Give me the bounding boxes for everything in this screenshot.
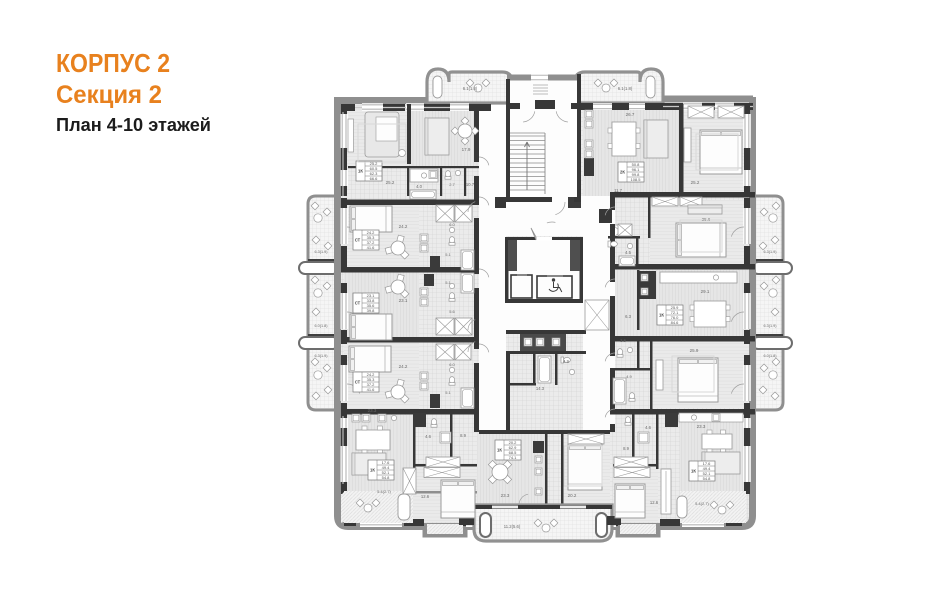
- svg-text:1К: 1К: [358, 169, 363, 174]
- svg-text:25.2: 25.2: [691, 180, 700, 185]
- svg-text:26.7: 26.7: [626, 112, 635, 117]
- svg-text:1К: 1К: [691, 469, 696, 474]
- svg-text:12.6: 12.6: [421, 494, 430, 499]
- svg-text:4.9: 4.9: [563, 359, 569, 364]
- svg-text:4.5: 4.5: [625, 250, 631, 255]
- svg-text:84.6: 84.6: [671, 320, 680, 325]
- svg-text:23.3: 23.3: [697, 424, 706, 429]
- svg-text:2К: 2К: [620, 170, 625, 175]
- svg-text:1К: 1К: [370, 468, 375, 473]
- svg-text:5.1: 5.1: [445, 390, 451, 395]
- svg-text:4.6: 4.6: [425, 434, 431, 439]
- svg-text:24.2: 24.2: [399, 364, 408, 369]
- svg-text:5.4(2.7): 5.4(2.7): [695, 501, 709, 506]
- svg-text:4.6: 4.6: [645, 425, 651, 430]
- svg-text:20.2: 20.2: [568, 493, 577, 498]
- svg-text:5.4(2.7): 5.4(2.7): [377, 489, 391, 494]
- svg-text:1К: 1К: [659, 313, 664, 318]
- svg-text:6.3(1.9): 6.3(1.9): [763, 250, 777, 254]
- svg-text:СТ: СТ: [355, 380, 361, 385]
- svg-text:5.1: 5.1: [445, 280, 451, 285]
- svg-text:54.8: 54.8: [703, 476, 712, 481]
- svg-text:6.0: 6.0: [449, 222, 455, 227]
- svg-text:41.6: 41.6: [367, 245, 376, 250]
- svg-text:Секция 2: Секция 2: [56, 81, 162, 109]
- svg-text:6.3(1.9): 6.3(1.9): [763, 324, 777, 328]
- svg-text:66.6: 66.6: [370, 176, 379, 181]
- svg-text:6.1(1.8): 6.1(1.8): [618, 86, 633, 91]
- svg-text:23.3: 23.3: [368, 408, 377, 413]
- svg-text:10.7: 10.7: [466, 182, 475, 187]
- svg-text:6.0(1.8): 6.0(1.8): [763, 354, 777, 358]
- svg-text:8.9: 8.9: [623, 446, 629, 451]
- svg-text:5.6: 5.6: [449, 309, 455, 314]
- svg-text:41.6: 41.6: [367, 387, 376, 392]
- svg-text:12.6: 12.6: [650, 500, 659, 505]
- svg-text:25.2: 25.2: [386, 180, 395, 185]
- svg-text:8.9: 8.9: [460, 433, 466, 438]
- svg-text:24.2: 24.2: [399, 224, 408, 229]
- svg-text:25.9: 25.9: [690, 348, 699, 353]
- svg-text:КОРПУС 2: КОРПУС 2: [56, 48, 170, 78]
- svg-text:108.5: 108.5: [630, 177, 641, 182]
- svg-text:6.3(1.9): 6.3(1.9): [314, 354, 328, 358]
- svg-text:4.9: 4.9: [626, 374, 632, 379]
- svg-text:6.1(1.8): 6.1(1.8): [463, 86, 478, 91]
- svg-text:39.8: 39.8: [367, 308, 376, 313]
- svg-text:23.3: 23.3: [501, 493, 510, 498]
- svg-text:2.7: 2.7: [449, 182, 455, 187]
- svg-text:6.0(1.8): 6.0(1.8): [314, 324, 328, 328]
- svg-text:11.2(5.6): 11.2(5.6): [504, 524, 521, 529]
- svg-text:1К: 1К: [497, 448, 502, 453]
- svg-text:6.3(1.9): 6.3(1.9): [314, 250, 328, 254]
- svg-text:6.3: 6.3: [625, 314, 631, 319]
- svg-text:СТ: СТ: [355, 238, 361, 243]
- svg-text:17.9: 17.9: [462, 147, 471, 152]
- svg-text:23.1: 23.1: [399, 298, 408, 303]
- svg-text:6.0: 6.0: [449, 362, 455, 367]
- svg-text:74.1: 74.1: [509, 455, 518, 460]
- svg-text:11.7: 11.7: [614, 188, 623, 193]
- svg-text:14.3: 14.3: [536, 386, 545, 391]
- svg-text:4.0: 4.0: [416, 184, 422, 189]
- svg-text:54.8: 54.8: [382, 475, 391, 480]
- svg-text:План 4-10 этажей: План 4-10 этажей: [56, 115, 211, 135]
- svg-text:29.1: 29.1: [701, 289, 710, 294]
- svg-text:5.1: 5.1: [445, 252, 451, 257]
- svg-text:3.8: 3.8: [620, 338, 626, 343]
- svg-text:СТ: СТ: [355, 301, 361, 306]
